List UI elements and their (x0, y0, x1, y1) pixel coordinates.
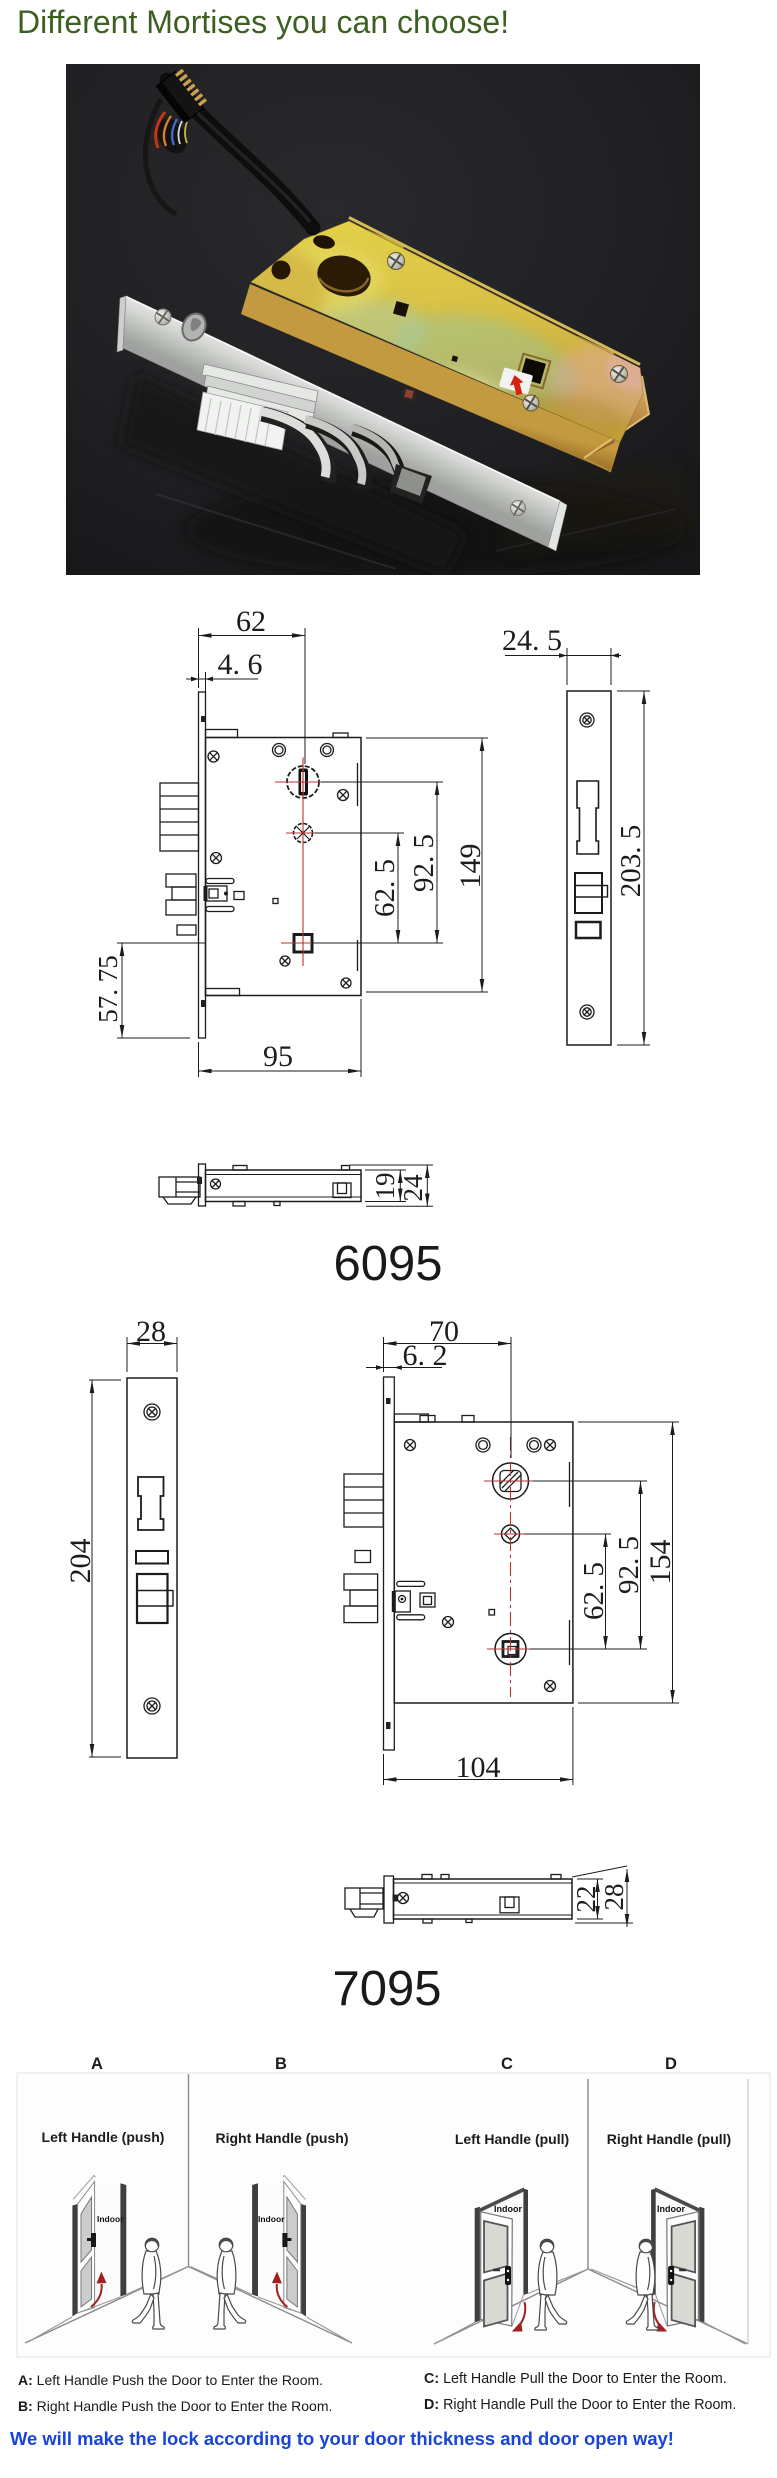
svg-text:Right Handle (pull): Right Handle (pull) (607, 2131, 731, 2147)
svg-text:22: 22 (571, 1886, 601, 1913)
svg-text:28: 28 (136, 1315, 166, 1348)
svg-text:95: 95 (263, 1040, 293, 1073)
svg-text:62. 5: 62. 5 (578, 1562, 610, 1620)
svg-text:Right Handle (push): Right Handle (push) (216, 2130, 349, 2146)
svg-text:Indoor: Indoor (97, 2214, 124, 2224)
svg-text:104: 104 (456, 1751, 501, 1784)
svg-text:204: 204 (64, 1539, 97, 1584)
svg-text:62. 5: 62. 5 (369, 859, 401, 917)
svg-text:Indoor: Indoor (258, 2214, 285, 2224)
svg-text:D: D (665, 2055, 677, 2073)
svg-text:A: A (91, 2055, 103, 2073)
svg-text:Left Handle (push): Left Handle (push) (42, 2129, 165, 2145)
svg-text:24. 5: 24. 5 (502, 624, 562, 657)
svg-text:62: 62 (236, 605, 266, 638)
svg-text:28: 28 (599, 1884, 629, 1911)
svg-text:C: C (501, 2055, 513, 2073)
svg-text:Left Handle (pull): Left Handle (pull) (455, 2131, 569, 2147)
svg-text:92. 5: 92. 5 (613, 1536, 645, 1594)
svg-text:B: B (275, 2055, 287, 2073)
svg-text:149: 149 (454, 844, 487, 889)
svg-text:203. 5: 203. 5 (615, 825, 647, 898)
svg-text:6095: 6095 (333, 1237, 442, 1291)
svg-text:154: 154 (644, 1540, 677, 1585)
svg-text:6. 2: 6. 2 (403, 1339, 448, 1372)
svg-text:19: 19 (370, 1173, 400, 1200)
svg-text:24: 24 (398, 1174, 428, 1202)
svg-text:92. 5: 92. 5 (408, 834, 440, 892)
svg-text:7095: 7095 (332, 1962, 441, 2016)
svg-text:Indoor: Indoor (494, 2204, 522, 2214)
svg-text:57. 75: 57. 75 (93, 955, 123, 1023)
svg-text:4. 6: 4. 6 (218, 648, 263, 681)
svg-text:Indoor: Indoor (657, 2204, 685, 2214)
